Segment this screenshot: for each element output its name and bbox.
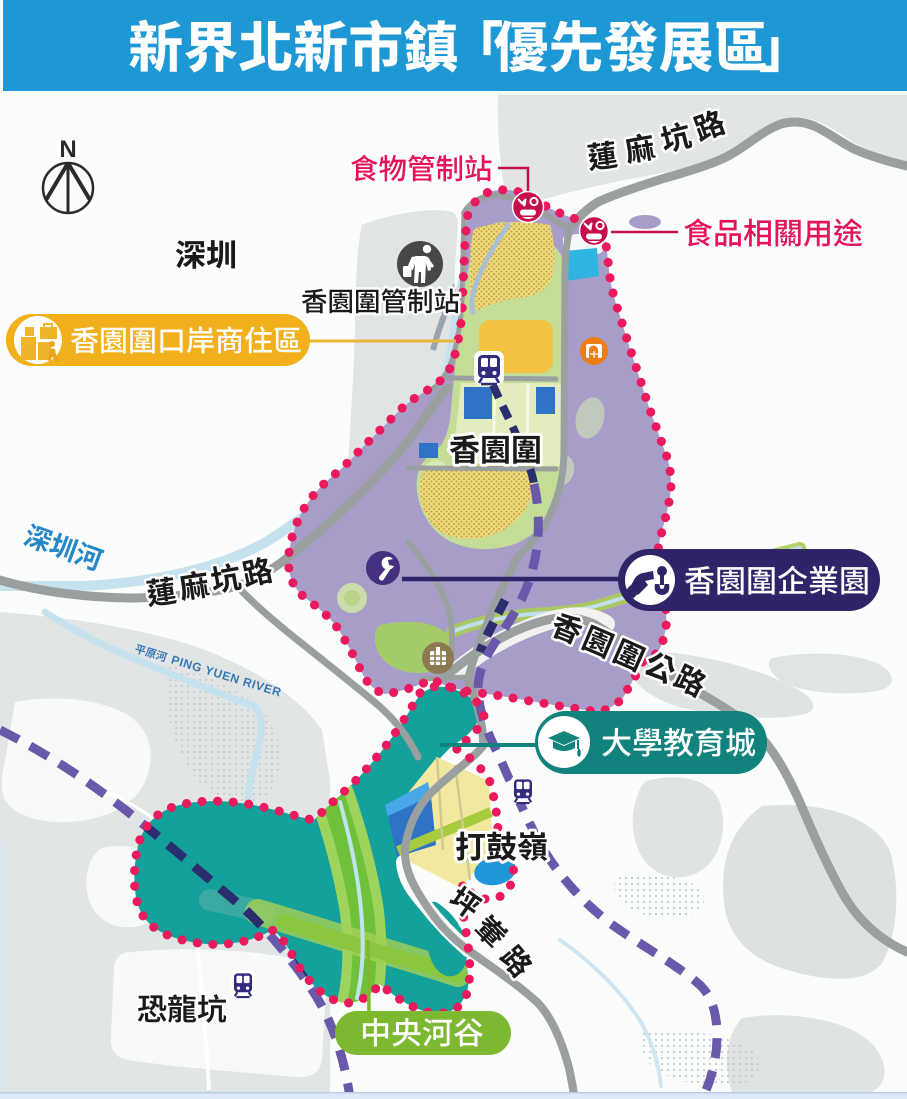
svg-text:N: N: [59, 136, 76, 163]
